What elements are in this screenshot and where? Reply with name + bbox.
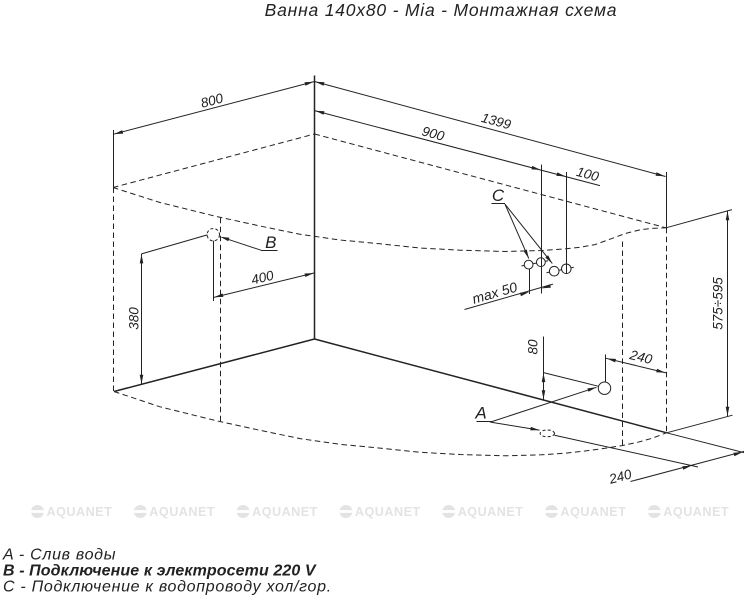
svg-text:380: 380	[127, 307, 142, 330]
svg-text:C: C	[492, 186, 505, 205]
svg-text:80: 80	[525, 339, 540, 355]
svg-text:AQUANET: AQUANET	[149, 505, 215, 519]
svg-text:A - Слив воды: A - Слив воды	[2, 547, 116, 564]
svg-text:AQUANET: AQUANET	[458, 505, 524, 519]
svg-text:AQUANET: AQUANET	[47, 505, 113, 519]
svg-text:AQUANET: AQUANET	[355, 505, 421, 519]
svg-text:B: B	[265, 233, 276, 252]
svg-text:C - Подключение к водопроводу: C - Подключение к водопроводу хол/гор.	[3, 579, 332, 596]
svg-text:575÷595: 575÷595	[711, 277, 726, 330]
svg-text:B - Подключение к электросети: B - Подключение к электросети 220 V	[3, 563, 317, 580]
svg-text:AQUANET: AQUANET	[663, 505, 729, 519]
svg-text:AQUANET: AQUANET	[561, 505, 627, 519]
svg-text:A: A	[474, 403, 486, 422]
svg-text:AQUANET: AQUANET	[252, 505, 318, 519]
svg-text:Ванна 140х80 - Mia - Монтажная: Ванна 140х80 - Mia - Монтажная схема	[265, 0, 618, 20]
